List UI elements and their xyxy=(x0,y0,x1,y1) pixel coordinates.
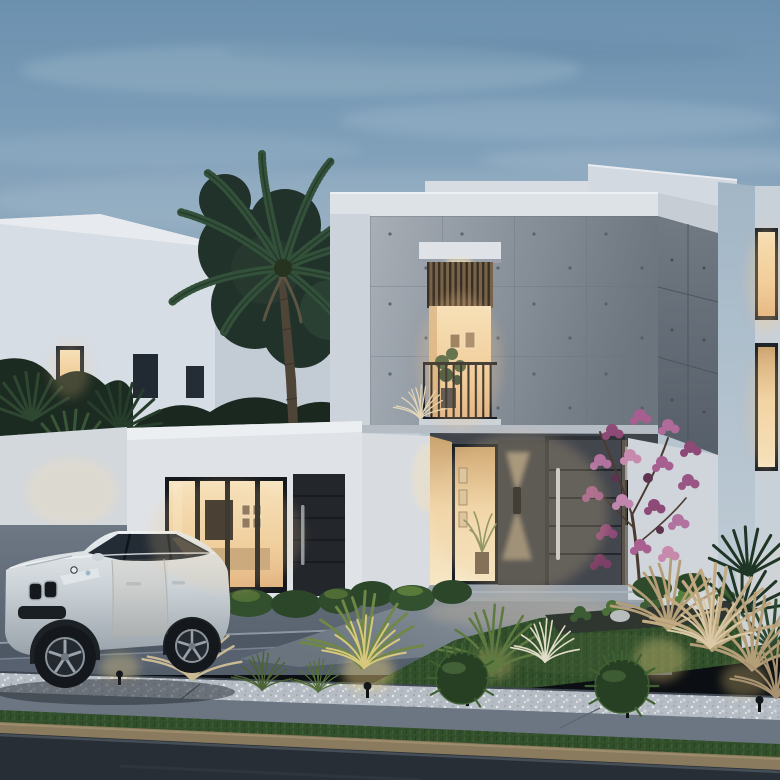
front-wheel xyxy=(34,626,96,688)
background-window-dark xyxy=(133,354,158,398)
headlight-lens xyxy=(86,571,91,576)
balcony-glow xyxy=(418,294,502,430)
render-viewport: Twilight 3D rendering of a modern two-st… xyxy=(0,0,780,780)
bumper-intake xyxy=(18,606,66,619)
car-shadow xyxy=(0,679,235,705)
fascia-front xyxy=(330,193,658,216)
entrance-glow xyxy=(432,432,608,592)
rear-wheel xyxy=(165,619,219,673)
fence-light-wash xyxy=(26,458,118,526)
background-window-glow xyxy=(50,342,90,398)
side-mirror xyxy=(92,553,104,561)
villa-render xyxy=(0,0,780,780)
background-window-dark xyxy=(186,366,204,398)
bmw-roundel xyxy=(71,567,77,573)
upper-white-wall xyxy=(330,214,370,430)
garden-rock xyxy=(610,610,630,622)
palm-crown xyxy=(274,259,292,277)
shrub-highlight xyxy=(442,662,466,674)
living-room-glow xyxy=(148,479,304,591)
warm-reflection xyxy=(112,558,168,638)
shrub-highlight xyxy=(602,670,626,682)
